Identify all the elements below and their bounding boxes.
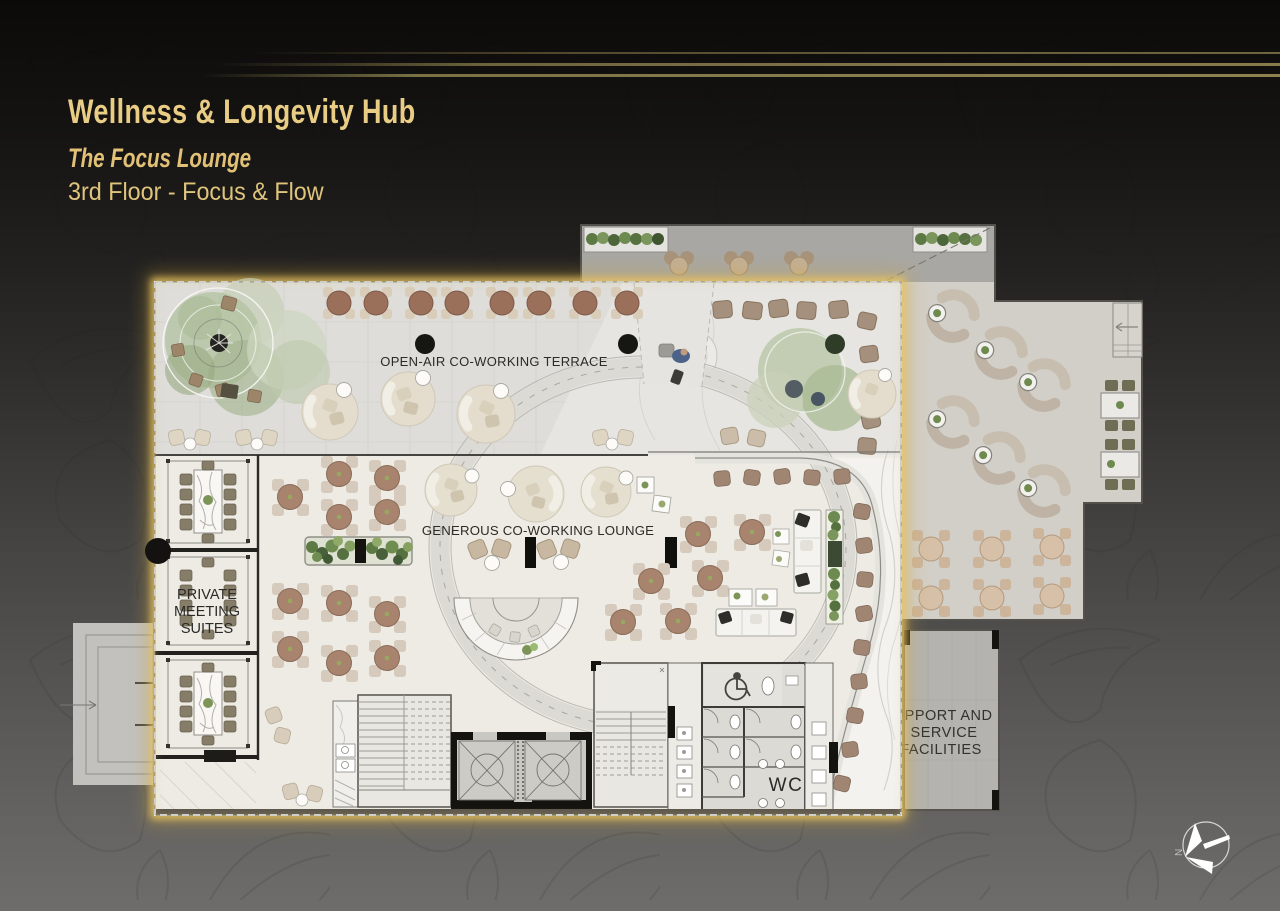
svg-text:GENEROUS CO-WORKING LOUNGE: GENEROUS CO-WORKING LOUNGE — [422, 523, 654, 538]
svg-text:MEETING: MEETING — [174, 604, 240, 620]
svg-text:SUITES: SUITES — [181, 621, 233, 637]
svg-text:FACILITIES: FACILITIES — [900, 742, 982, 758]
svg-text:N: N — [1174, 849, 1185, 856]
svg-text:WC: WC — [769, 775, 804, 796]
svg-text:SERVICE: SERVICE — [911, 725, 978, 741]
svg-text:OPEN-AIR CO-WORKING TERRACE: OPEN-AIR CO-WORKING TERRACE — [380, 354, 607, 369]
svg-text:PRIVATE: PRIVATE — [177, 587, 237, 603]
